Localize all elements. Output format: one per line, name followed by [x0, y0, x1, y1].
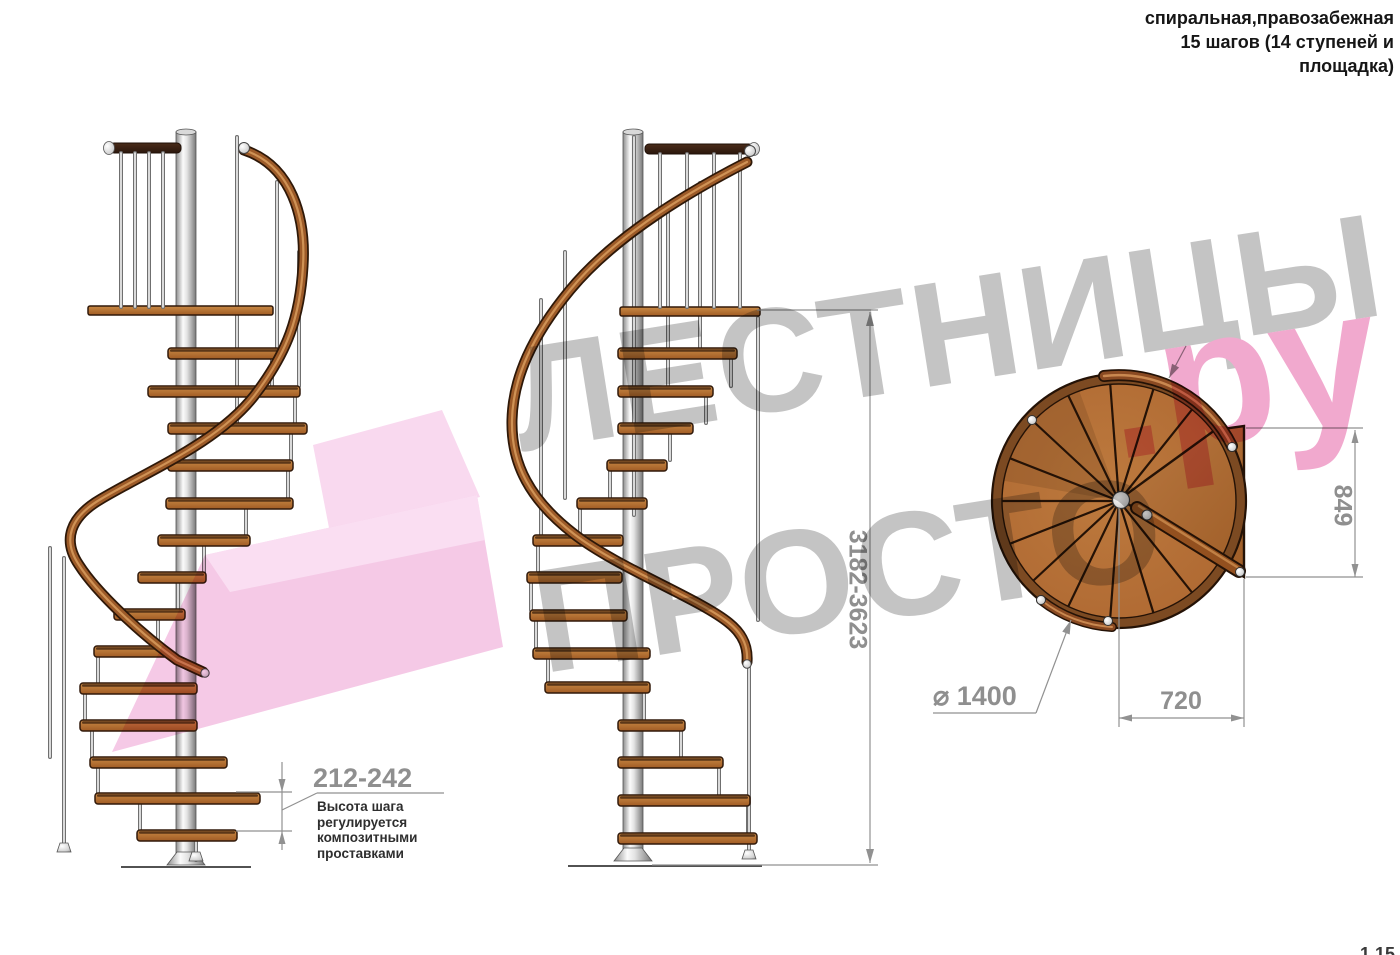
- step-top-edge: [529, 573, 620, 576]
- step-top-edge: [170, 349, 278, 352]
- step-top-edge: [150, 387, 298, 390]
- step-top-edge: [139, 831, 235, 834]
- note-line: композитными: [317, 830, 417, 846]
- middle-staircase-view: [512, 129, 762, 866]
- arrow-up-icon: [1352, 430, 1359, 443]
- step-top-edge: [620, 796, 748, 799]
- step-top-edge: [620, 721, 683, 724]
- plan-baluster-dot: [1228, 443, 1237, 452]
- plan-baluster-dot: [1037, 596, 1046, 605]
- dim-diameter-value: ⌀ 1400: [933, 681, 1017, 712]
- title-line1: спиральная,правозабежная: [974, 6, 1394, 30]
- step-top-edge: [82, 721, 195, 724]
- note-line: проставками: [317, 846, 417, 862]
- arrow-down-icon: [866, 849, 874, 863]
- left-staircase-view: [50, 129, 307, 867]
- step-top-edge: [170, 424, 305, 427]
- title-line3: площадка): [974, 54, 1394, 78]
- leader-step-height: [282, 793, 317, 810]
- step-top-edge: [535, 649, 648, 652]
- step-top-edge: [170, 461, 291, 464]
- pole-base-flange: [614, 848, 652, 861]
- step-top-edge: [532, 611, 625, 614]
- step-top-edge: [620, 834, 755, 837]
- baluster-foot: [57, 843, 71, 852]
- plan-bar-band: [1142, 510, 1152, 520]
- baluster-foot: [742, 850, 756, 859]
- handrail-end-ferrule: [201, 669, 209, 677]
- drawing-page: спиральная,правозабежная 15 шагов (14 ст…: [0, 0, 1400, 955]
- plan-bar-tip: [1236, 568, 1245, 577]
- plan-center-pole: [1113, 492, 1130, 509]
- step-top-edge: [82, 684, 195, 687]
- step-top-edge: [579, 499, 645, 502]
- arrow-left-icon: [1119, 715, 1132, 722]
- plan-baluster-dot: [1104, 617, 1113, 626]
- page-number: 1.15: [1360, 944, 1395, 955]
- handrail-end-cap: [104, 142, 115, 155]
- pole-cap: [176, 129, 196, 135]
- step-top-edge: [168, 499, 291, 502]
- step-top-edge: [160, 536, 248, 539]
- pole-cap: [623, 129, 643, 135]
- handrail-end-ferrule: [743, 660, 751, 668]
- dim-total-height-value: 3182-3623: [843, 520, 872, 660]
- dim-step-height-value: 212-242: [313, 763, 412, 794]
- step-height-note: Высота шага регулируется композитными пр…: [317, 799, 417, 861]
- arrow-down-icon: [279, 779, 286, 792]
- step-top-edge: [140, 573, 204, 576]
- step-top-edge: [620, 349, 735, 352]
- note-line: Высота шага: [317, 799, 417, 815]
- title-line2: 15 шагов (14 ступеней и: [974, 30, 1394, 54]
- step-top-edge: [547, 683, 648, 686]
- step-top-edge: [97, 794, 258, 797]
- step-top-edge: [92, 758, 225, 761]
- arrow-up-icon: [279, 831, 286, 844]
- arrow-handrail-icon: [1165, 364, 1179, 380]
- handrail-start-ball: [239, 143, 250, 154]
- arrow-down-icon: [1352, 564, 1359, 577]
- platform-board: [88, 306, 273, 315]
- arrow-up-icon: [866, 312, 874, 326]
- side-views: [50, 129, 762, 867]
- dim-step-width-value: 720: [1141, 687, 1221, 716]
- step-top-edge: [609, 461, 665, 464]
- center-pole: [176, 132, 196, 862]
- title-block: спиральная,правозабежная 15 шагов (14 ст…: [974, 6, 1394, 78]
- staircase-drawing: [0, 0, 1400, 955]
- step-top-edge: [620, 387, 711, 390]
- plan-baluster-dot: [1028, 416, 1037, 425]
- step-top-edge: [620, 758, 721, 761]
- arrow-right-icon: [1231, 715, 1244, 722]
- handrail-start-ball: [745, 146, 756, 157]
- dim-platform-depth-value: 849: [1328, 466, 1357, 546]
- step-top-edge: [620, 424, 691, 427]
- note-line: регулируется: [317, 815, 417, 831]
- leader-diameter: [1036, 620, 1071, 713]
